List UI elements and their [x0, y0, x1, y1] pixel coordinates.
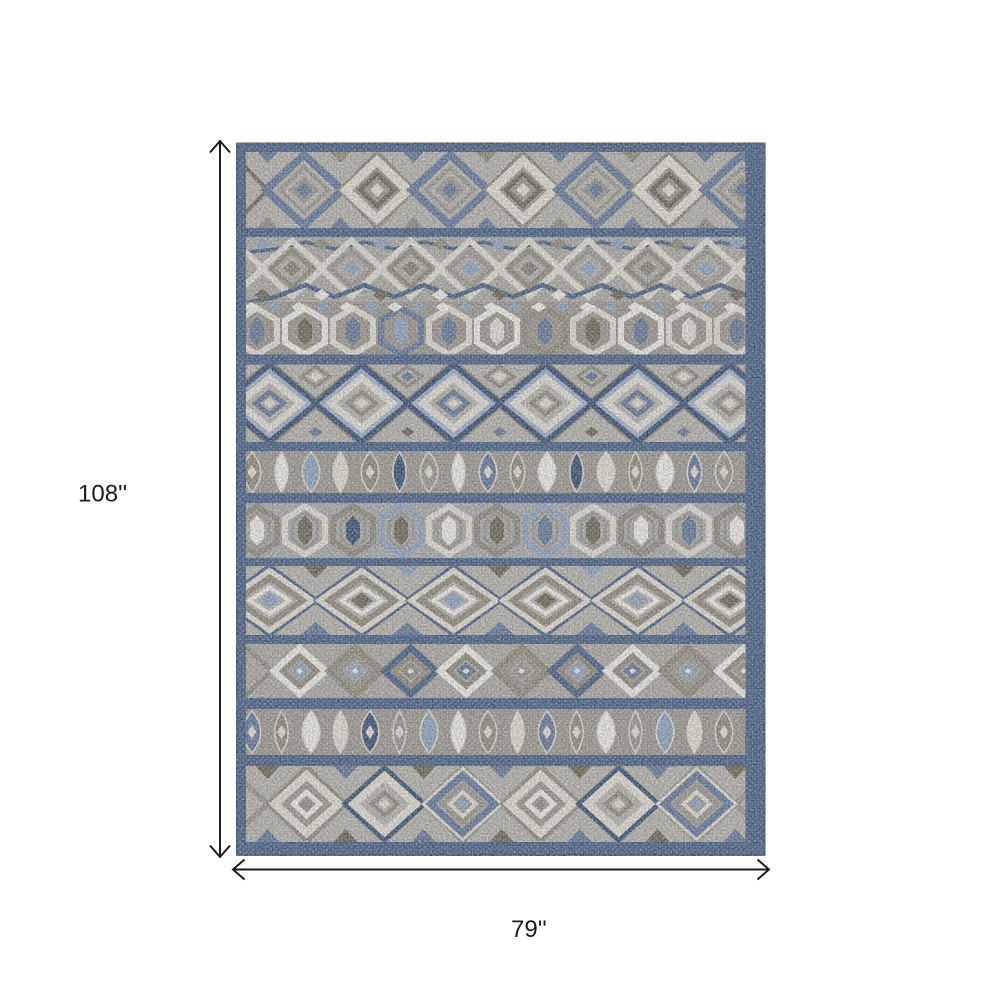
svg-text:79'': 79'' — [511, 916, 547, 943]
svg-text:108'': 108'' — [78, 481, 127, 508]
